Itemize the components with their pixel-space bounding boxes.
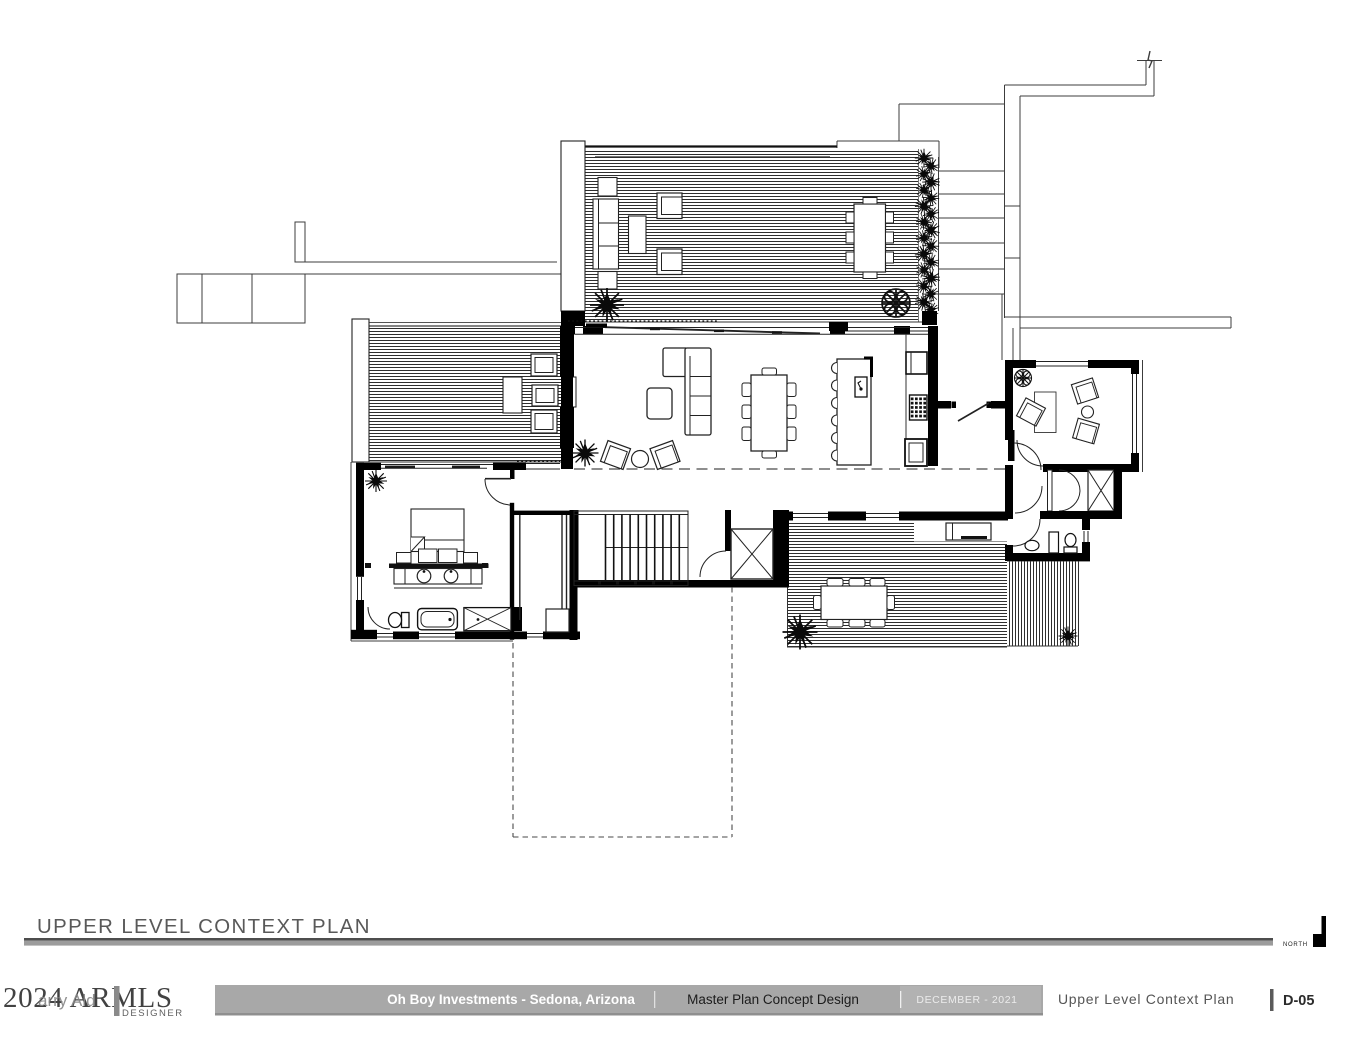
svg-text:UPPER LEVEL CONTEXT PLAN: UPPER LEVEL CONTEXT PLAN	[37, 916, 371, 938]
svg-text:D-05: D-05	[1283, 993, 1314, 1009]
svg-text:Oh Boy Investments - Sedona, A: Oh Boy Investments - Sedona, Arizona	[387, 992, 635, 1007]
svg-text:Master Plan Concept Design: Master Plan Concept Design	[687, 992, 859, 1007]
svg-text:Upper Level Context Plan: Upper Level Context Plan	[1058, 991, 1234, 1007]
svg-text:DECEMBER - 2021: DECEMBER - 2021	[916, 994, 1017, 1006]
svg-text:arry Ald: arry Ald	[38, 991, 96, 1010]
svg-text:NORTH: NORTH	[1283, 942, 1308, 948]
svg-text:DESIGNER: DESIGNER	[122, 1008, 184, 1019]
